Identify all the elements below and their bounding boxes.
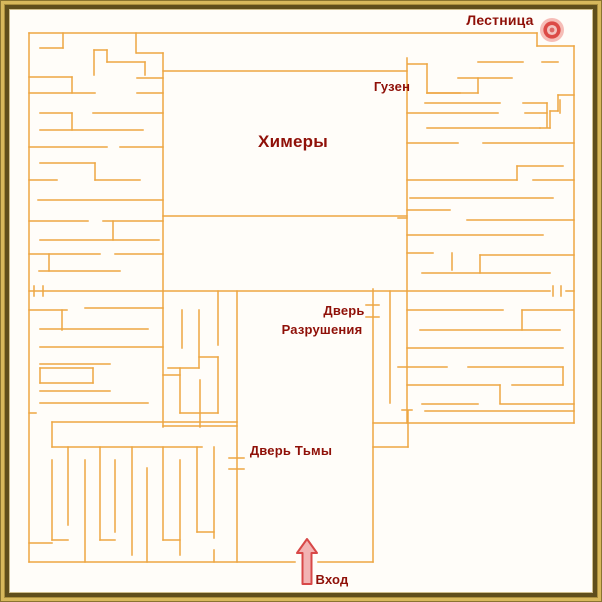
dungeon-map-frame: Лестница Гузен Химеры Дверь Разрушения Д… (0, 0, 602, 602)
maze-walls-layer (0, 0, 602, 602)
label-stairs: Лестница (466, 13, 533, 28)
entrance-arrow-icon (297, 539, 317, 584)
label-door-destruction-line2: Разрушения (282, 323, 363, 337)
label-guzen: Гузен (374, 80, 410, 94)
label-chimeras: Химеры (258, 133, 328, 151)
label-door-darkness: Дверь Тьмы (250, 444, 332, 458)
stairs-marker-ring (550, 28, 555, 33)
stairs-marker-icon (540, 18, 564, 42)
label-entrance: Вход (316, 573, 349, 587)
label-door-destruction-line1: Дверь (323, 304, 364, 318)
